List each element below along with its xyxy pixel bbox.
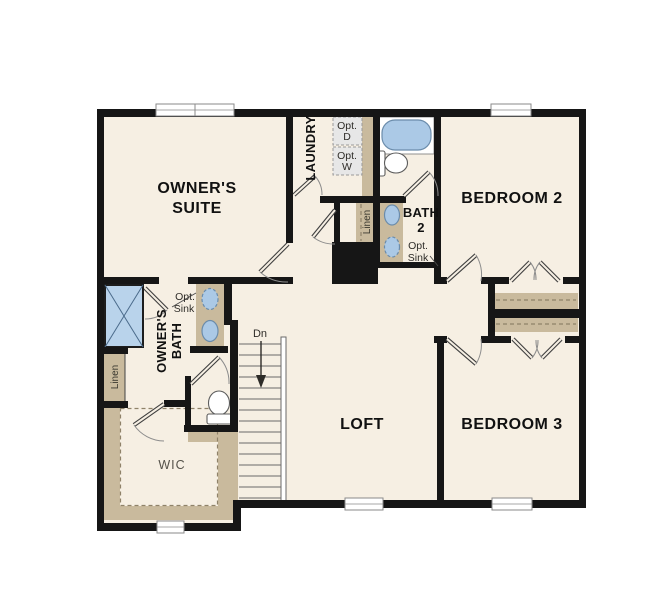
laundry-label: LAUNDRY [303, 115, 318, 180]
bedroom3-label: BEDROOM 3 [461, 416, 562, 433]
floor-plan-page: OWNER'S SUITE LAUNDRY BEDROOM 2 BEDROOM … [0, 0, 670, 609]
loft-window [345, 498, 383, 510]
owners-linen-label: Linen [110, 365, 121, 389]
bathtub [382, 120, 431, 150]
bedroom3-closet-shelf [493, 318, 578, 332]
bath2-opt-sink-label-1: Opt. [408, 240, 428, 252]
opt-washer-label-2: W [342, 161, 352, 173]
owners-suite-label-1: OWNER'S [157, 180, 236, 197]
bath2-sink [385, 205, 400, 225]
owners-bath-label-2: BATH [169, 323, 184, 359]
owners-opt-sink-label-2: Sink [174, 303, 195, 315]
bath2-optional-sink [385, 237, 400, 257]
bath2-label-1: BATH [403, 205, 439, 220]
wic-label: WIC [158, 458, 185, 472]
bath2-label-2: 2 [417, 220, 425, 235]
bedroom2-closet-shelf [493, 293, 578, 309]
stairs-dn-label: Dn [253, 328, 267, 340]
bedroom2-window [491, 104, 531, 116]
owners-optional-sink [202, 289, 218, 310]
owners-suite-window [156, 104, 234, 116]
laundry-counter [362, 117, 373, 197]
wic-window [157, 521, 184, 533]
owners-shower [105, 285, 143, 347]
owners-opt-sink-label-1: Opt. [175, 291, 195, 303]
bedroom2-label: BEDROOM 2 [461, 190, 562, 207]
owners-suite-label-2: SUITE [172, 200, 222, 217]
loft-label: LOFT [340, 416, 384, 433]
hall-linen-label: Linen [362, 210, 373, 234]
floor-plan-drawing: OWNER'S SUITE LAUNDRY BEDROOM 2 BEDROOM … [0, 0, 670, 609]
owners-sink [202, 321, 218, 342]
bath2-opt-sink-label-2: Sink [408, 252, 429, 264]
bedroom3-window [492, 498, 532, 510]
stair-railing [281, 337, 286, 503]
chase [332, 242, 378, 284]
opt-dryer-label-2: D [343, 131, 351, 143]
owners-bath-label-1: OWNER'S [154, 309, 169, 373]
